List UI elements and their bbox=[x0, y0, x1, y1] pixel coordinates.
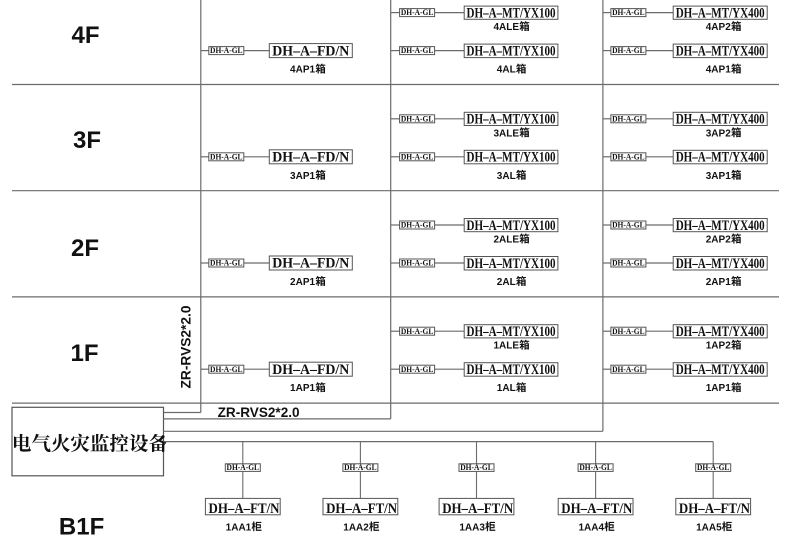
svg-text:DH–A–FT/N: DH–A–FT/N bbox=[442, 501, 513, 517]
svg-text:4AP1: 4AP1 bbox=[706, 65, 731, 76]
svg-text:DH-A-GL: DH-A-GL bbox=[210, 46, 243, 55]
svg-text:DH-A-GL: DH-A-GL bbox=[210, 365, 243, 374]
svg-text:DH–A–MT/YX100: DH–A–MT/YX100 bbox=[467, 256, 556, 272]
svg-text:1AA4: 1AA4 bbox=[578, 522, 604, 533]
svg-text:DH–A–MT/YX400: DH–A–MT/YX400 bbox=[676, 324, 765, 340]
svg-text:DH-A-GL: DH-A-GL bbox=[612, 365, 645, 374]
svg-text:1AP2: 1AP2 bbox=[706, 341, 731, 352]
svg-text:3AP1: 3AP1 bbox=[706, 171, 731, 182]
svg-text:2ALE: 2ALE bbox=[493, 235, 519, 246]
svg-text:4F: 4F bbox=[71, 22, 99, 49]
svg-text:DH–A–FT/N: DH–A–FT/N bbox=[326, 501, 397, 517]
svg-text:1AP1: 1AP1 bbox=[706, 383, 731, 394]
svg-text:DH-A-GL: DH-A-GL bbox=[344, 463, 377, 472]
svg-text:DH-A-GL: DH-A-GL bbox=[401, 46, 434, 55]
svg-text:ZR-RVS2*2.0: ZR-RVS2*2.0 bbox=[178, 305, 194, 388]
svg-text:DH-A-GL: DH-A-GL bbox=[612, 46, 645, 55]
svg-text:DH-A-GL: DH-A-GL bbox=[612, 152, 645, 161]
svg-text:DH–A–MT/YX400: DH–A–MT/YX400 bbox=[676, 5, 765, 21]
svg-text:4ALE: 4ALE bbox=[493, 22, 519, 33]
svg-text:DH-A-GL: DH-A-GL bbox=[612, 114, 645, 123]
svg-text:DH–A–FD/N: DH–A–FD/N bbox=[272, 256, 349, 272]
svg-text:DH-A-GL: DH-A-GL bbox=[612, 327, 645, 336]
svg-text:1AA2: 1AA2 bbox=[343, 522, 369, 533]
svg-text:4AP2: 4AP2 bbox=[706, 22, 731, 33]
svg-text:2AL: 2AL bbox=[497, 277, 516, 288]
svg-text:3AP2: 3AP2 bbox=[706, 128, 731, 139]
svg-text:DH–A–FD/N: DH–A–FD/N bbox=[272, 43, 349, 59]
svg-text:3ALE: 3ALE bbox=[493, 128, 519, 139]
svg-text:DH–A–FT/N: DH–A–FT/N bbox=[679, 501, 750, 517]
svg-text:3F: 3F bbox=[73, 127, 101, 154]
svg-text:DH–A–MT/YX400: DH–A–MT/YX400 bbox=[676, 43, 765, 59]
svg-text:DH–A–FT/N: DH–A–FT/N bbox=[209, 501, 280, 517]
svg-text:DH–A–MT/YX100: DH–A–MT/YX100 bbox=[467, 5, 556, 21]
svg-text:DH-A-GL: DH-A-GL bbox=[401, 365, 434, 374]
svg-text:DH–A–MT/YX100: DH–A–MT/YX100 bbox=[467, 324, 556, 340]
svg-text:DH–A–FD/N: DH–A–FD/N bbox=[272, 362, 349, 378]
svg-text:DH–A–MT/YX400: DH–A–MT/YX400 bbox=[676, 256, 765, 272]
svg-text:1AL: 1AL bbox=[497, 383, 516, 394]
svg-text:DH–A–MT/YX100: DH–A–MT/YX100 bbox=[467, 112, 556, 128]
svg-text:DH-A-GL: DH-A-GL bbox=[612, 259, 645, 268]
svg-text:DH-A-GL: DH-A-GL bbox=[210, 259, 243, 268]
svg-text:3AL: 3AL bbox=[497, 171, 516, 182]
svg-text:ZR-RVS2*2.0: ZR-RVS2*2.0 bbox=[218, 404, 300, 420]
svg-text:1F: 1F bbox=[70, 340, 98, 367]
svg-text:1AA1: 1AA1 bbox=[226, 522, 252, 533]
svg-text:DH–A–MT/YX100: DH–A–MT/YX100 bbox=[467, 43, 556, 59]
svg-text:DH-A-GL: DH-A-GL bbox=[401, 8, 434, 17]
svg-text:DH-A-GL: DH-A-GL bbox=[401, 114, 434, 123]
svg-text:2F: 2F bbox=[71, 235, 99, 262]
svg-text:DH-A-GL: DH-A-GL bbox=[401, 327, 434, 336]
svg-text:2AP1: 2AP1 bbox=[290, 277, 315, 288]
svg-text:DH–A–MT/YX100: DH–A–MT/YX100 bbox=[467, 218, 556, 234]
svg-text:DH-A-GL: DH-A-GL bbox=[401, 259, 434, 268]
svg-text:DH-A-GL: DH-A-GL bbox=[227, 463, 260, 472]
svg-text:DH-A-GL: DH-A-GL bbox=[460, 463, 493, 472]
svg-text:DH–A–MT/YX400: DH–A–MT/YX400 bbox=[676, 150, 765, 166]
svg-text:1AP1: 1AP1 bbox=[290, 383, 315, 394]
svg-text:2AP1: 2AP1 bbox=[706, 277, 731, 288]
svg-text:DH-A-GL: DH-A-GL bbox=[697, 463, 730, 472]
svg-text:DH-A-GL: DH-A-GL bbox=[401, 221, 434, 230]
svg-text:4AL: 4AL bbox=[497, 65, 516, 76]
svg-text:1AA3: 1AA3 bbox=[459, 522, 485, 533]
svg-text:DH–A–MT/YX100: DH–A–MT/YX100 bbox=[467, 150, 556, 166]
svg-text:DH-A-GL: DH-A-GL bbox=[579, 463, 612, 472]
svg-text:DH–A–FD/N: DH–A–FD/N bbox=[272, 150, 349, 166]
svg-text:DH–A–MT/YX400: DH–A–MT/YX400 bbox=[676, 218, 765, 234]
svg-text:DH–A–MT/YX400: DH–A–MT/YX400 bbox=[676, 362, 765, 378]
svg-text:DH–A–FT/N: DH–A–FT/N bbox=[561, 501, 632, 517]
svg-text:DH-A-GL: DH-A-GL bbox=[401, 152, 434, 161]
svg-text:DH-A-GL: DH-A-GL bbox=[612, 8, 645, 17]
svg-text:DH–A–MT/YX100: DH–A–MT/YX100 bbox=[467, 362, 556, 378]
svg-text:DH-A-GL: DH-A-GL bbox=[612, 221, 645, 230]
svg-text:DH–A–MT/YX400: DH–A–MT/YX400 bbox=[676, 112, 765, 128]
svg-text:4AP1: 4AP1 bbox=[290, 65, 315, 76]
svg-text:3AP1: 3AP1 bbox=[290, 171, 315, 182]
svg-text:B1F: B1F bbox=[59, 513, 104, 538]
svg-text:1AA5: 1AA5 bbox=[696, 522, 722, 533]
svg-text:DH-A-GL: DH-A-GL bbox=[210, 152, 243, 161]
svg-text:2AP2: 2AP2 bbox=[706, 235, 731, 246]
svg-text:1ALE: 1ALE bbox=[493, 341, 519, 352]
